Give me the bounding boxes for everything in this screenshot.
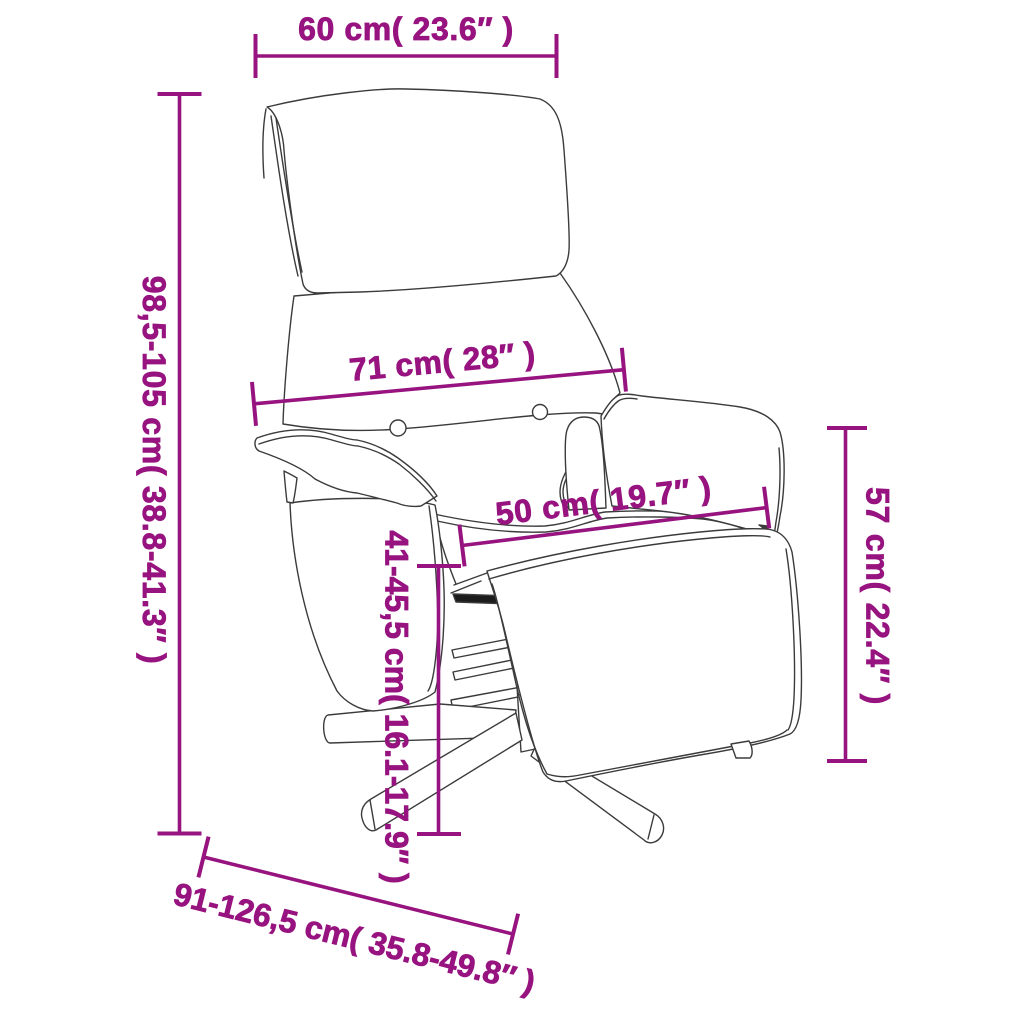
svg-text:57 cm( 22.4″ ): 57 cm( 22.4″ )	[860, 487, 896, 705]
svg-text:60 cm( 23.6″ ): 60 cm( 23.6″ )	[298, 11, 514, 47]
svg-text:98,5-105 cm( 38.8-41.3″ ): 98,5-105 cm( 38.8-41.3″ )	[136, 276, 172, 665]
svg-text:41-45,5 cm( 16.1-17.9″ ): 41-45,5 cm( 16.1-17.9″ )	[379, 530, 415, 883]
